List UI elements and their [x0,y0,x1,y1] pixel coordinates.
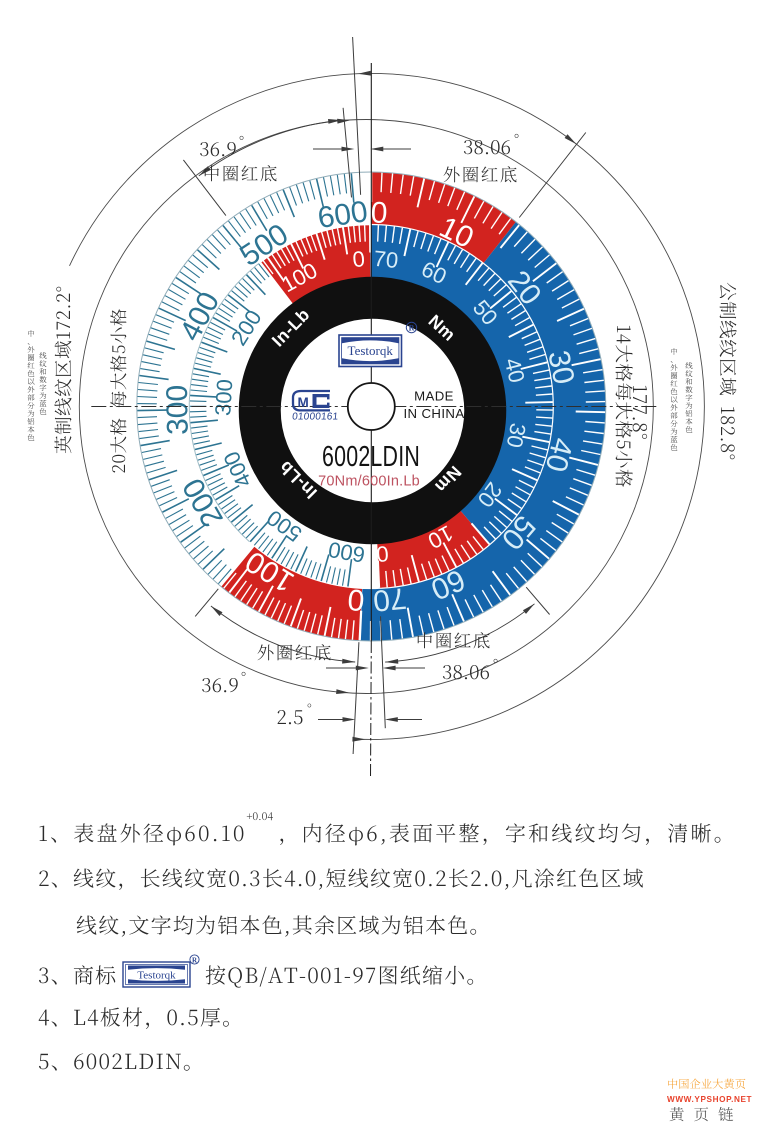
svg-text:300: 300 [161,385,195,436]
svg-text:70: 70 [373,246,400,273]
svg-text:30: 30 [541,348,580,387]
svg-text:0: 0 [346,582,365,616]
svg-text:Testorqk: Testorqk [137,970,176,982]
svg-text:MADE: MADE [414,389,454,404]
svg-text:70Nm/600In.Lb: 70Nm/600In.Lb [318,474,420,490]
svg-text:R: R [409,324,415,333]
svg-text:30: 30 [502,421,531,450]
svg-text:WWW.YPSHOP.NET: WWW.YPSHOP.NET [667,1095,752,1104]
svg-text:Testorqk: Testorqk [348,343,394,358]
svg-text:0: 0 [370,196,388,230]
svg-text:01000161: 01000161 [292,411,339,422]
svg-text:M: M [298,395,309,410]
svg-text:6002LDIN: 6002LDIN [322,441,420,473]
svg-text:70: 70 [372,581,408,617]
svg-text:300: 300 [210,378,237,416]
svg-text:0: 0 [375,541,389,567]
svg-text:0: 0 [352,246,366,272]
svg-text:IN CHINA: IN CHINA [403,406,464,421]
